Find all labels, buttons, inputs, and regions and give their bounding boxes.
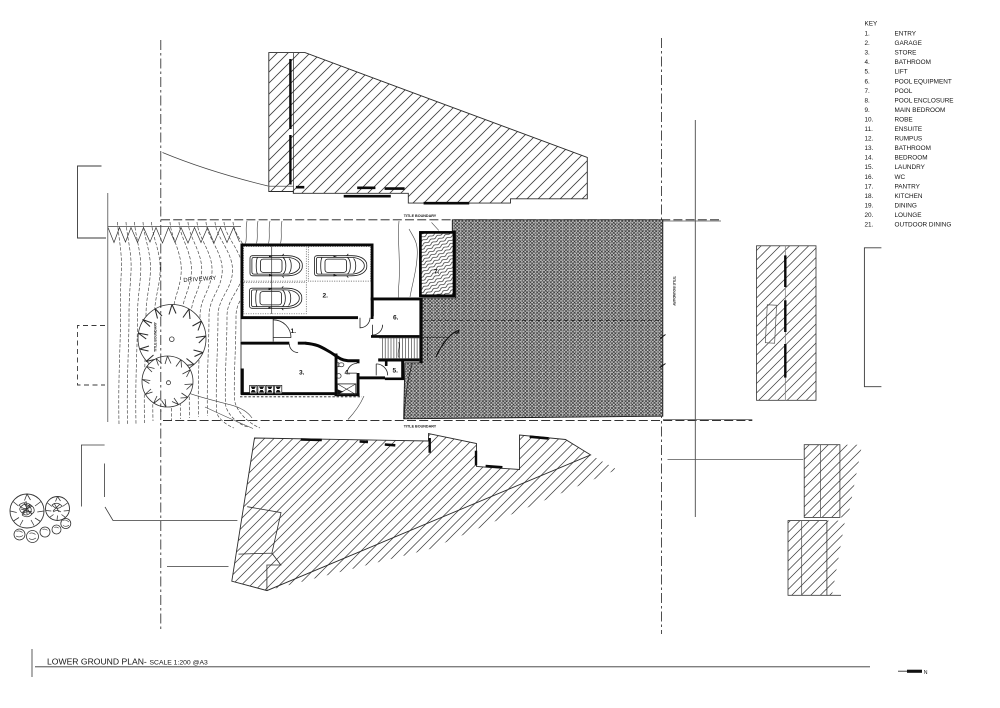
svg-text:13.: 13. [865, 145, 874, 152]
svg-text:TITLE BOUNDARY: TITLE BOUNDARY [404, 214, 437, 218]
svg-text:N: N [924, 670, 928, 676]
svg-text:TITLE BOUNDARY: TITLE BOUNDARY [404, 425, 437, 429]
svg-text:TITLE BOUNDARY: TITLE BOUNDARY [672, 276, 676, 307]
svg-text:2.: 2. [323, 293, 329, 300]
svg-text:OUTDOOR DINING: OUTDOOR DINING [895, 222, 952, 229]
svg-text:14.: 14. [865, 155, 874, 162]
svg-text:GARAGE: GARAGE [895, 40, 922, 47]
svg-text:6.: 6. [865, 78, 871, 85]
svg-text:1.: 1. [865, 31, 871, 38]
svg-text:8.: 8. [865, 97, 871, 104]
svg-text:DINING: DINING [895, 202, 917, 209]
svg-text:20.: 20. [865, 212, 874, 219]
svg-text:2.: 2. [865, 40, 871, 47]
svg-text:15.: 15. [865, 164, 874, 171]
svg-text:4.: 4. [865, 59, 871, 66]
svg-text:LOWER GROUND PLAN-: LOWER GROUND PLAN- [47, 656, 147, 666]
svg-text:5.: 5. [865, 69, 871, 76]
svg-text:KITCHEN: KITCHEN [895, 193, 923, 200]
svg-text:19.: 19. [865, 202, 874, 209]
svg-text:5.: 5. [393, 368, 399, 375]
svg-text:9.: 9. [865, 107, 871, 114]
svg-text:7.: 7. [434, 269, 440, 276]
svg-text:WC: WC [895, 174, 906, 181]
svg-text:21.: 21. [865, 222, 874, 229]
svg-text:RUMPUS: RUMPUS [895, 136, 923, 143]
svg-text:1.: 1. [291, 328, 297, 335]
svg-text:6.: 6. [393, 315, 399, 322]
svg-text:ENTRY: ENTRY [895, 31, 917, 38]
svg-text:LOUNGE: LOUNGE [895, 212, 922, 219]
svg-text:BEDROOM: BEDROOM [895, 155, 928, 162]
svg-text:3.: 3. [865, 50, 871, 57]
svg-text:SCALE 1:200 @A3: SCALE 1:200 @A3 [150, 659, 209, 666]
svg-text:POOL: POOL [895, 88, 913, 95]
svg-text:ENSUITE: ENSUITE [895, 126, 923, 133]
svg-text:16.: 16. [865, 174, 874, 181]
svg-text:BATHROOM: BATHROOM [895, 59, 931, 66]
svg-text:7.: 7. [865, 88, 871, 95]
svg-text:17.: 17. [865, 183, 874, 190]
svg-text:18.: 18. [865, 193, 874, 200]
svg-text:11.: 11. [865, 126, 874, 133]
svg-text:STORE: STORE [895, 50, 917, 57]
svg-text:POOL EQUIPMENT: POOL EQUIPMENT [895, 78, 952, 85]
svg-text:10.: 10. [865, 116, 874, 123]
svg-text:LAUNDRY: LAUNDRY [895, 164, 926, 171]
svg-text:ROBE: ROBE [895, 116, 913, 123]
svg-text:POOL ENCLOSURE: POOL ENCLOSURE [895, 97, 954, 104]
svg-text:LIFT: LIFT [895, 69, 908, 76]
svg-text:3.: 3. [299, 370, 305, 377]
svg-text:BATHROOM: BATHROOM [895, 145, 931, 152]
svg-text:12.: 12. [865, 136, 874, 143]
svg-text:MAIN BEDROOM: MAIN BEDROOM [895, 107, 946, 114]
svg-text:TITLE BOUNDARY: TITLE BOUNDARY [154, 321, 158, 352]
svg-text:PANTRY: PANTRY [895, 183, 921, 190]
svg-text:KEY: KEY [865, 21, 879, 28]
